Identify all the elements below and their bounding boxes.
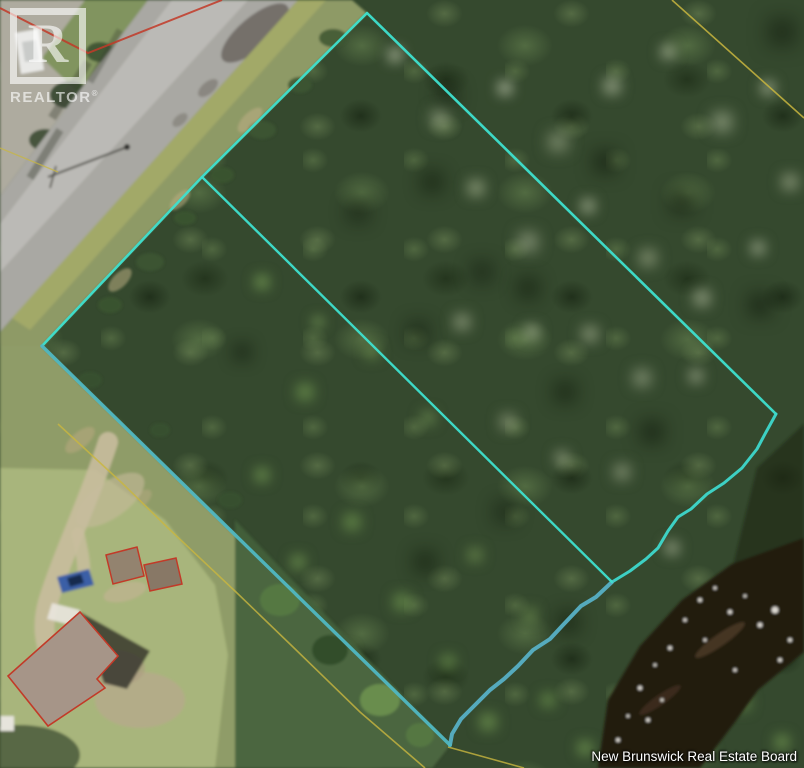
realtor-logo-r: R [28, 16, 68, 72]
neighbor-lot-line-corner [448, 747, 524, 768]
bush [210, 167, 234, 183]
rock [646, 718, 650, 722]
driveway-spur [78, 534, 84, 574]
rock [728, 610, 732, 614]
rock [744, 595, 747, 598]
rock [654, 664, 657, 667]
ground-features [0, 0, 804, 768]
tree [260, 584, 300, 616]
bush [218, 492, 242, 508]
rock [638, 686, 642, 690]
rock [758, 623, 763, 628]
white-trailer [0, 716, 14, 731]
scene-overlay [0, 0, 804, 768]
bush [174, 211, 196, 225]
rock [683, 618, 687, 622]
realtor-wordmark: REALTOR® [10, 89, 98, 106]
rock [698, 598, 702, 602]
rock [788, 638, 792, 642]
bush [150, 423, 170, 437]
rock [703, 638, 706, 641]
rock [660, 698, 663, 701]
rock [668, 646, 672, 650]
rock [778, 658, 782, 662]
utility-pole [124, 144, 130, 150]
bush [98, 297, 122, 313]
aerial-listing-photo: R REALTOR® New Brunswick Real Estate Boa… [0, 0, 804, 768]
rock [713, 586, 716, 589]
subject-interior-division-line [202, 177, 612, 582]
rock [616, 738, 620, 742]
rock [733, 668, 737, 672]
rock [627, 715, 630, 718]
neighbor-lot-line-right [672, 0, 804, 118]
registered-trademark-symbol: ® [92, 89, 98, 98]
rock [772, 607, 779, 614]
realtor-watermark: R REALTOR® [10, 8, 98, 106]
subject-boundary-river-edge-lower [450, 582, 612, 745]
attribution-text: New Brunswick Real Estate Board [591, 749, 797, 764]
realtor-logo: R [10, 8, 86, 84]
bush [136, 253, 164, 271]
